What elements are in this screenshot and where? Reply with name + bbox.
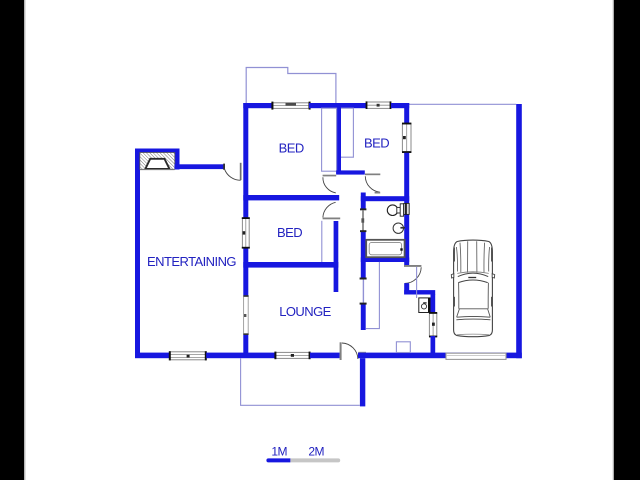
svg-text:2M: 2M <box>308 445 324 459</box>
svg-text:BED: BED <box>279 141 304 156</box>
svg-text:LOUNGE: LOUNGE <box>279 304 331 319</box>
svg-text:1M: 1M <box>271 445 287 459</box>
svg-text:BED: BED <box>277 225 302 240</box>
svg-text:ENTERTAINING: ENTERTAINING <box>147 254 236 269</box>
svg-text:BED: BED <box>364 135 389 150</box>
